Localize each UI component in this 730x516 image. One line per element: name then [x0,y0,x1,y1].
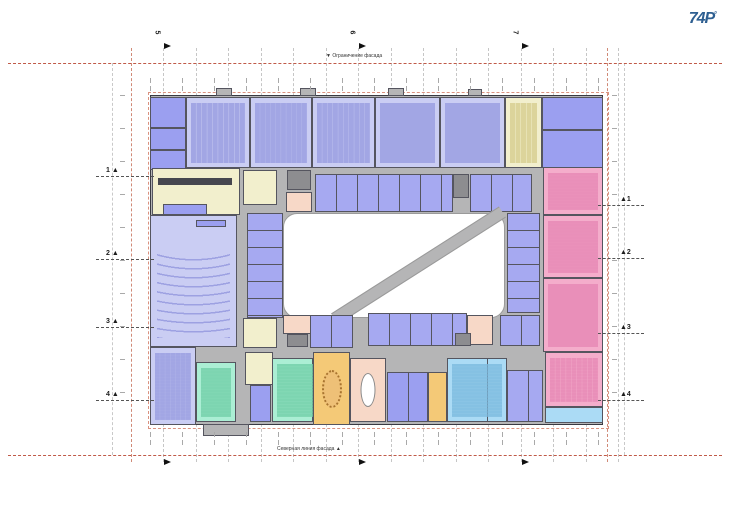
bottom-facade-text: Северная линия фасада [277,446,334,452]
dimension-ticks [150,78,605,83]
axis-flag-icon [359,43,366,49]
logo-text: 74P [689,10,714,27]
room-ne [542,130,603,168]
section-marker-left: 1 ▲ [106,167,119,174]
section-line [96,327,154,328]
section-line [598,205,644,206]
floor-plan-page: 1 ▲2 ▲3 ▲4 ▲▲1▲2▲3▲4567 74P° ▼ Ограничен… [0,0,730,516]
classroom [312,97,375,168]
plan-canvas: 1 ▲2 ▲3 ▲4 ▲▲1▲2▲3▲4567 [0,0,730,516]
room-orange [428,372,447,422]
room-ne [542,97,603,130]
section-line [96,259,154,260]
axis-flag-icon [164,459,171,465]
room-yellow [245,352,273,385]
stair-core [287,334,308,347]
stair-core [287,170,311,190]
office-row [470,174,532,212]
section-line [96,400,154,401]
section-line [598,258,644,259]
classroom [250,97,312,168]
dimension-ticks [150,432,605,437]
dimension-ticks [612,95,617,425]
office-row [315,174,453,212]
axis-flag-icon [522,459,529,465]
classroom-pink [543,215,603,278]
office-column [247,213,283,318]
room-nw [150,128,186,150]
section-marker-left: 4 ▲ [106,391,119,398]
reception-desk [158,178,232,185]
room-yellow [505,97,542,168]
top-facade-label: ▼ Ограничение фасада [326,53,382,59]
room-salmon [283,315,311,334]
triangle-down-icon: ▼ [326,53,331,59]
section-marker-right: ▲2 [620,249,631,256]
axis-flag-icon [359,459,366,465]
dimension-ticks [150,440,605,445]
dimension-ticks [120,95,125,425]
room-nw [150,150,186,170]
section-line [598,333,644,334]
logo-mark: ° [714,12,716,19]
section-marker-right: ▲1 [620,196,631,203]
section-marker-left: 3 ▲ [106,318,119,325]
top-facade-text: Ограничение фасада [332,53,382,59]
axis-flag-icon [522,43,529,49]
office-row [500,315,540,346]
boundary-line-horizontal [8,455,722,456]
bottom-facade-label: Северная линия фасада ▲ [277,446,341,452]
room-blue [545,407,603,423]
classroom [186,97,250,168]
classroom-pink [543,278,603,352]
boundary-line-horizontal [8,63,722,64]
dimension-ticks [150,86,605,91]
stage-tables [163,204,207,215]
office-row [387,372,428,422]
office-row [368,313,467,346]
section-line [96,176,154,177]
office-column [507,213,540,313]
logo: 74P° [689,10,716,28]
stage-tables [196,220,226,227]
room-purple [250,385,271,422]
classroom-pink [545,352,603,407]
triangle-up-icon: ▲ [336,446,341,452]
stair-core [453,174,469,198]
section-marker-right: ▲4 [620,391,631,398]
room-salmon [286,192,312,212]
hall-orange [313,352,350,425]
office-row [507,370,543,422]
axis-marker-top: 5 [153,31,160,35]
room-yellow [243,170,277,205]
room-green [196,362,236,422]
room-blue [447,358,507,422]
auditorium [150,215,237,347]
axis-marker-top: 6 [348,31,355,35]
room-nw [150,97,186,128]
office-row [310,315,353,348]
room-sw [150,347,196,425]
classroom-pink [543,167,603,215]
room-yellow [243,318,277,348]
axis-flag-icon [164,43,171,49]
stair-hall [350,358,386,422]
section-marker-left: 2 ▲ [106,250,119,257]
classroom [440,97,505,168]
stair-core [455,333,471,346]
axis-marker-top: 7 [511,31,518,35]
section-marker-right: ▲3 [620,324,631,331]
section-line [598,400,644,401]
classroom [375,97,440,168]
